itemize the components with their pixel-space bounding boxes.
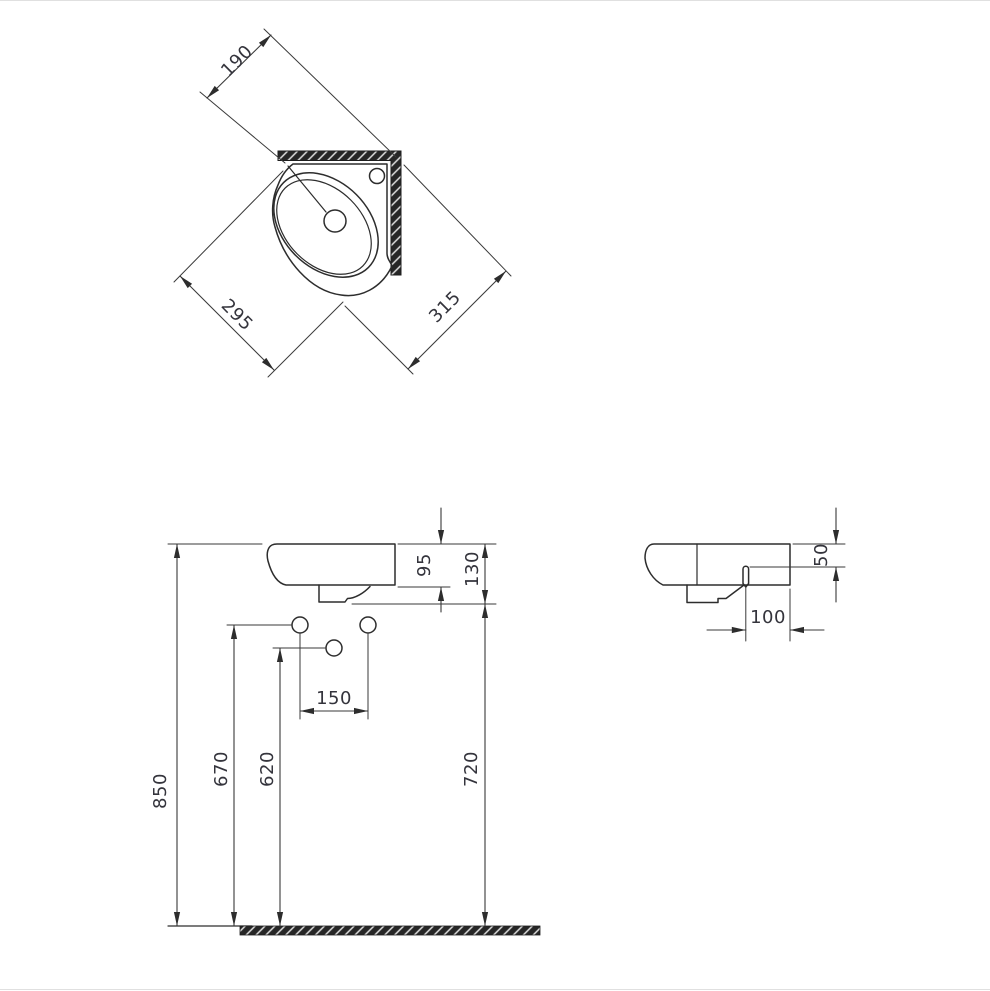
side-elevation-view: 50 100 [645, 508, 845, 641]
arrowhead [482, 912, 488, 926]
basin-outline-front [267, 544, 395, 585]
basin-outline-side [645, 544, 790, 585]
arrowhead [277, 648, 283, 662]
dim-850-label: 850 [150, 773, 171, 809]
fixing-slot [743, 566, 749, 587]
arrowhead [438, 530, 444, 544]
fixing-hole-right [360, 617, 376, 633]
arrowhead [482, 604, 488, 618]
technical-drawing-page: 190 295 315 [0, 0, 990, 990]
dim-315-label: 315 [425, 287, 465, 327]
dim-190-label: 190 [217, 41, 257, 81]
arrowhead [174, 544, 180, 558]
dim-95-label: 95 [414, 553, 435, 577]
top-plan-view: 190 295 315 [174, 29, 511, 377]
arrowhead [438, 587, 444, 601]
arrowhead [300, 708, 314, 714]
extension-line [200, 92, 285, 163]
dim-720-label: 720 [461, 751, 482, 787]
arrowhead [790, 627, 804, 633]
dimension-130: 130 [462, 544, 488, 604]
dim-130-label: 130 [462, 551, 483, 587]
dimension-850: 850 [150, 544, 180, 926]
arrowhead [354, 708, 368, 714]
dim-670-label: 670 [211, 751, 232, 787]
arrowhead [732, 627, 746, 633]
bowl-inner-ellipse [258, 161, 390, 293]
drain-circle [324, 210, 346, 232]
arrowhead [174, 912, 180, 926]
extension-line [174, 171, 283, 282]
dimension-315: 315 [345, 165, 511, 374]
dimension-100: 100 [707, 607, 824, 633]
floor-bar [240, 926, 540, 935]
extension-line [404, 165, 511, 276]
front-elevation-view: 95 130 150 850 670 [150, 508, 540, 935]
dim-620-label: 620 [257, 751, 278, 787]
extension-line [345, 306, 413, 374]
dimension-line [180, 276, 274, 370]
tap-hole-circle [370, 169, 385, 184]
dimension-50: 50 [811, 508, 839, 602]
corner-basin-technical-drawing: 190 295 315 [0, 1, 990, 991]
arrowhead [482, 590, 488, 604]
arrowhead [277, 912, 283, 926]
middle-hole [326, 640, 342, 656]
dimension-190: 190 [200, 29, 396, 163]
arrowhead [833, 567, 839, 581]
dimension-720: 720 [461, 604, 488, 926]
arrowhead [231, 625, 237, 639]
extension-line [268, 302, 343, 377]
dim-150-label: 150 [316, 688, 352, 709]
dimension-150: 150 [300, 688, 368, 714]
apron-outline-front [319, 585, 370, 602]
fixing-hole-left [292, 617, 308, 633]
dimension-670: 670 [211, 625, 237, 926]
dim-100-label: 100 [750, 607, 786, 628]
arrowhead [833, 530, 839, 544]
dim-295-label: 295 [217, 295, 257, 335]
apron-outline-side [687, 585, 744, 603]
extension-line [264, 29, 396, 157]
dimension-line [408, 271, 506, 369]
dimension-620: 620 [257, 648, 283, 926]
dimension-95: 95 [414, 508, 444, 612]
arrowhead [231, 912, 237, 926]
dim-50-label: 50 [811, 543, 832, 567]
